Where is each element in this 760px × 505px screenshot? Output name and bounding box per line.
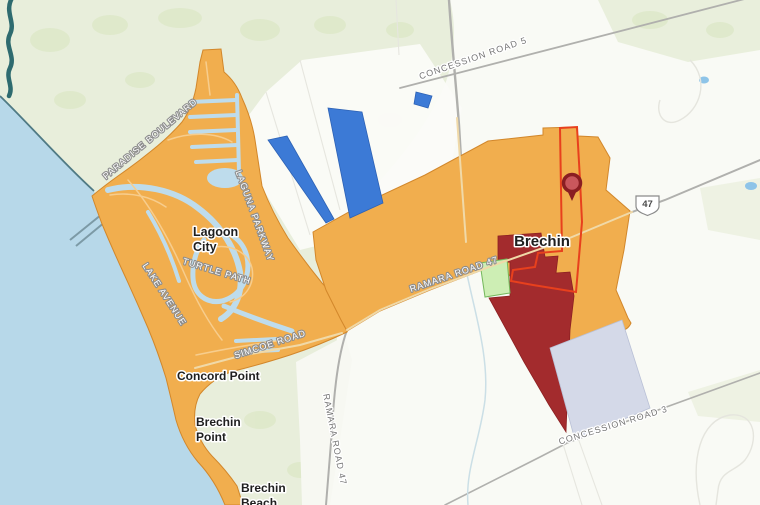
highway-47-shield-label: 47 [642,199,653,210]
place-label-concord-point: Concord Point [177,369,260,383]
place-label-brechin-point-line2: Point [196,430,226,444]
place-label-brechin-point-line1: Brechin [196,415,241,429]
place-label-lagoon-city-line2: City [193,240,217,254]
place-label-brechin-beach-line1: Brechin [241,481,286,495]
map-canvas[interactable]: 47 CONCESSION ROAD 5 CONCESSION ROAD 3 R… [0,0,760,505]
place-label-brechin-beach-line2: Beach [241,496,277,505]
river [8,0,12,96]
place-label-lagoon-city-line1: Lagoon [193,225,238,239]
pond-2 [745,182,757,190]
place-label-brechin: Brechin [514,233,570,250]
